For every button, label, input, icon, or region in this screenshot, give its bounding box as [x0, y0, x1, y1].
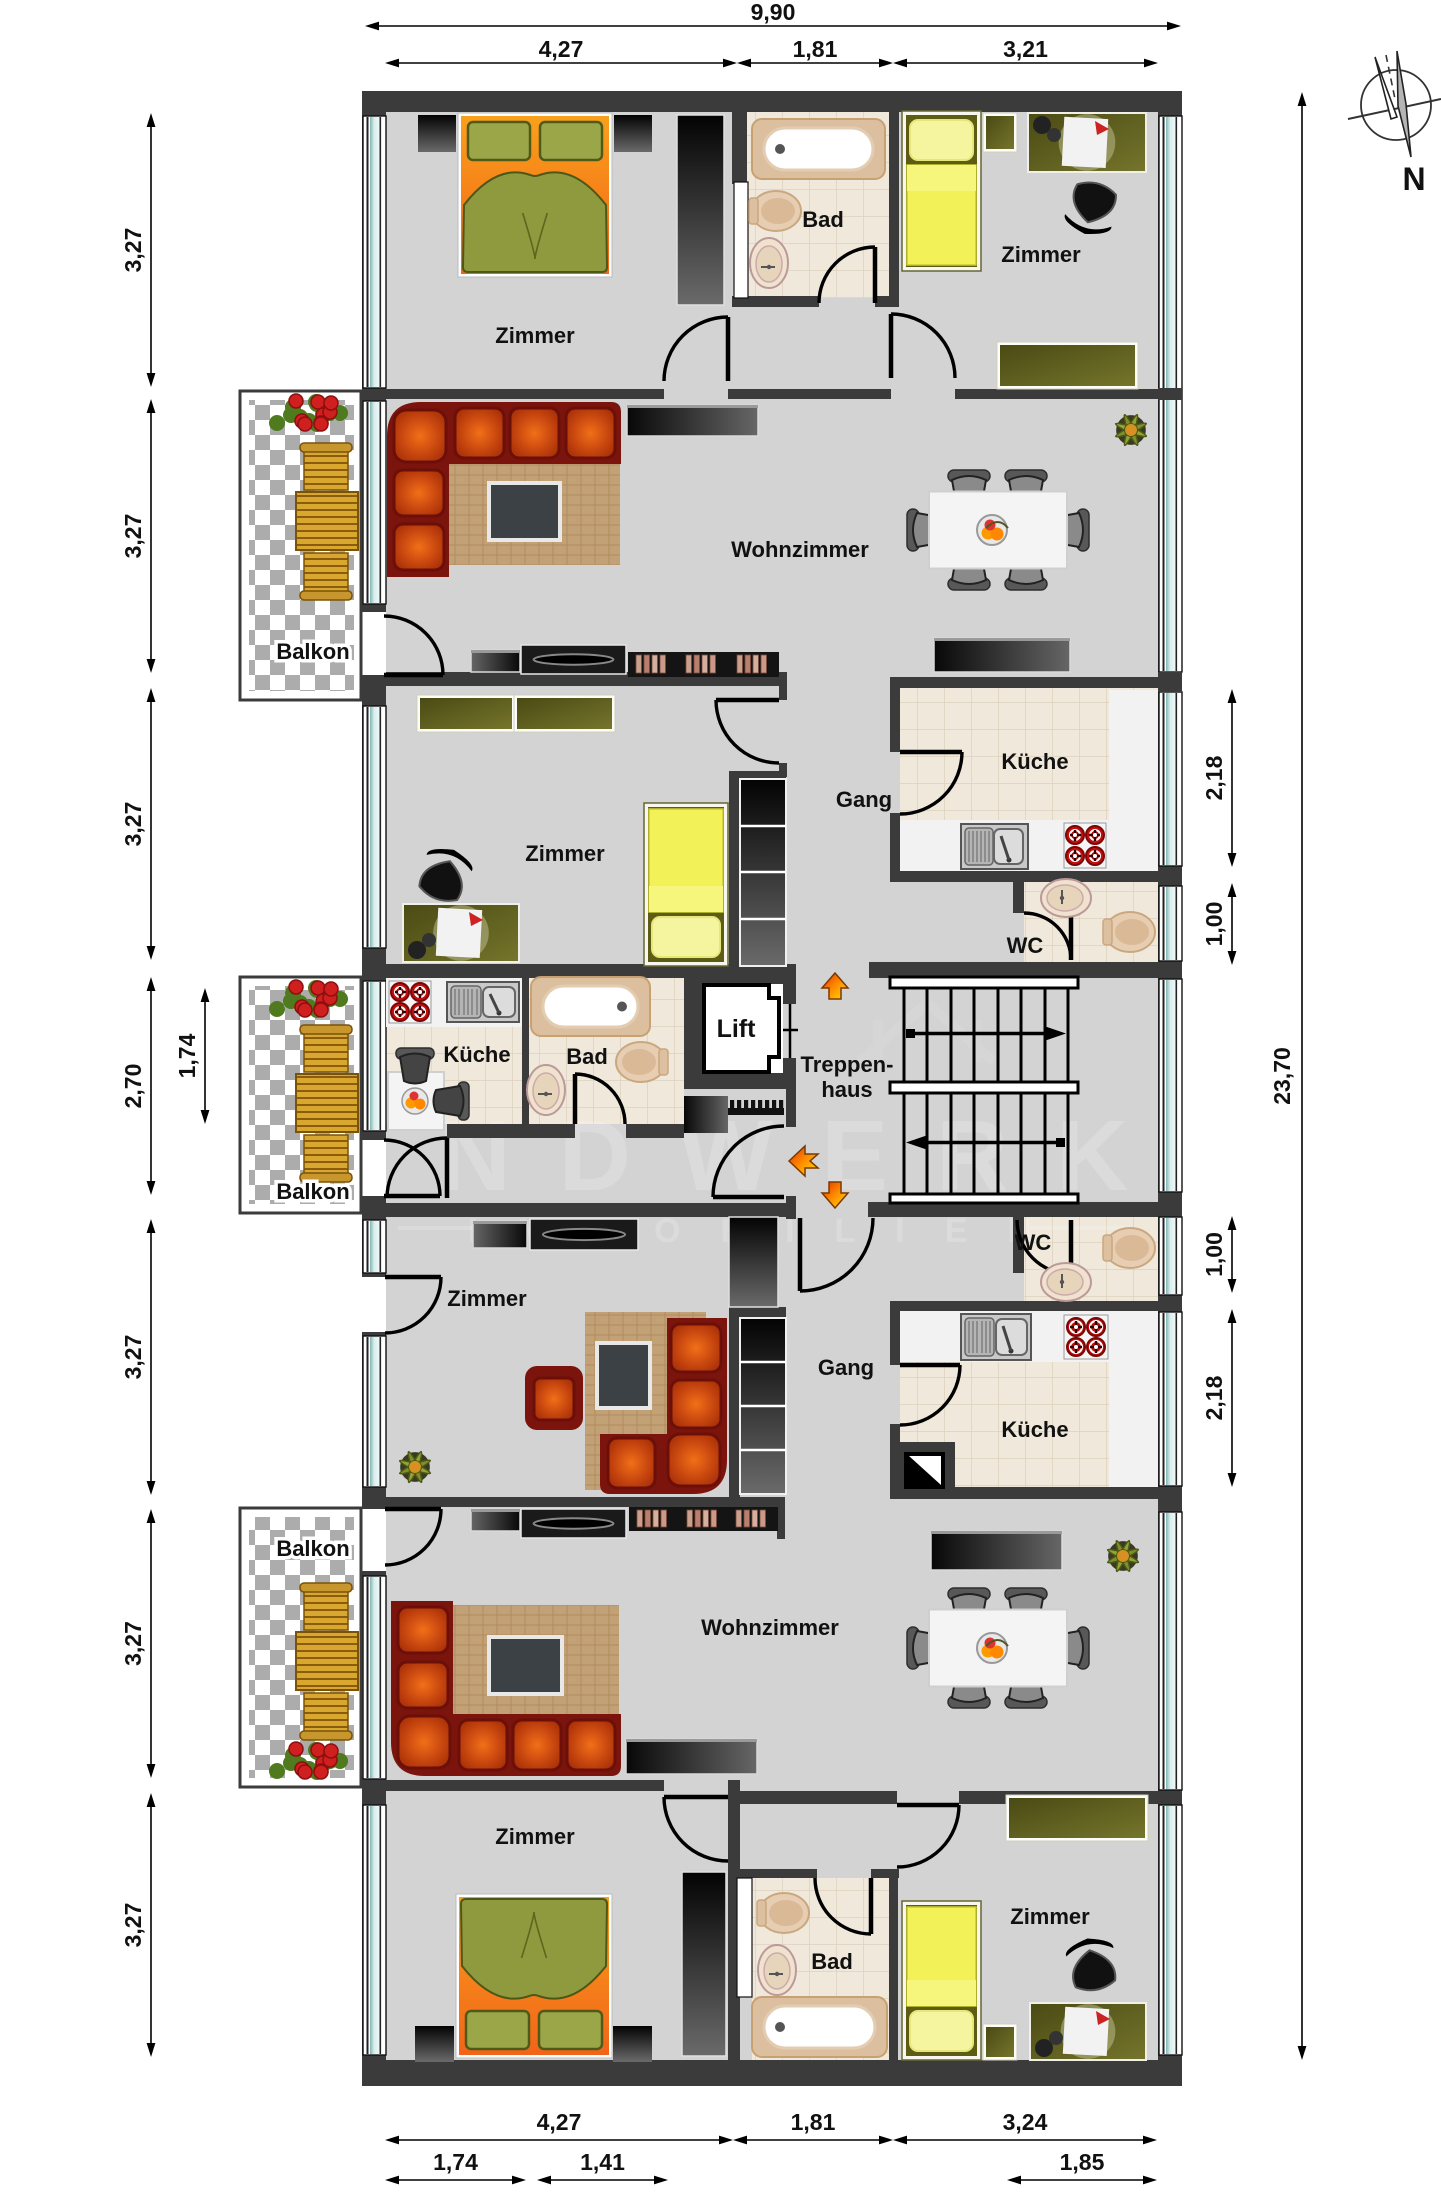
svg-text:1,41: 1,41	[580, 2149, 625, 2175]
svg-text:Küche: Küche	[443, 1042, 510, 1067]
svg-text:3,27: 3,27	[120, 1903, 146, 1948]
svg-text:Gang: Gang	[818, 1355, 874, 1380]
svg-text:1,00: 1,00	[1201, 902, 1227, 947]
svg-text:haus: haus	[821, 1077, 872, 1102]
svg-text:Balkon: Balkon	[276, 1179, 349, 1204]
svg-text:1,81: 1,81	[791, 2109, 836, 2135]
svg-text:Lift: Lift	[717, 1015, 757, 1043]
svg-text:Gang: Gang	[836, 787, 892, 812]
svg-text:1,74: 1,74	[433, 2149, 478, 2175]
svg-text:Balkon: Balkon	[276, 639, 349, 664]
svg-text:2,18: 2,18	[1201, 1375, 1227, 1420]
svg-text:3,27: 3,27	[120, 1621, 146, 1666]
svg-text:3,24: 3,24	[1003, 2109, 1048, 2135]
svg-text:4,27: 4,27	[539, 36, 584, 62]
svg-text:1,85: 1,85	[1060, 2149, 1105, 2175]
svg-text:Bad: Bad	[811, 1949, 853, 1974]
svg-text:Bad: Bad	[802, 207, 844, 232]
svg-text:Zimmer: Zimmer	[495, 323, 575, 348]
svg-text:2,70: 2,70	[120, 1064, 146, 1109]
svg-text:Küche: Küche	[1001, 749, 1068, 774]
svg-text:2,18: 2,18	[1201, 755, 1227, 800]
svg-text:Zimmer: Zimmer	[495, 1824, 575, 1849]
svg-text:1,74: 1,74	[174, 1033, 200, 1078]
svg-text:WC: WC	[1007, 933, 1044, 958]
svg-text:1,81: 1,81	[793, 36, 838, 62]
svg-text:4,27: 4,27	[537, 2109, 582, 2135]
svg-text:Zimmer: Zimmer	[1001, 242, 1081, 267]
svg-text:Treppen-: Treppen-	[801, 1052, 894, 1077]
svg-text:23,70: 23,70	[1269, 1047, 1295, 1105]
svg-text:Zimmer: Zimmer	[525, 841, 605, 866]
svg-text:3,27: 3,27	[120, 1335, 146, 1380]
svg-text:Wohnzimmer: Wohnzimmer	[701, 1615, 839, 1640]
svg-text:Küche: Küche	[1001, 1417, 1068, 1442]
svg-text:3,27: 3,27	[120, 802, 146, 847]
svg-text:3,27: 3,27	[120, 228, 146, 273]
svg-text:3,21: 3,21	[1003, 36, 1048, 62]
svg-text:9,90: 9,90	[751, 0, 796, 25]
svg-text:Zimmer: Zimmer	[447, 1286, 527, 1311]
svg-text:3,27: 3,27	[120, 514, 146, 559]
svg-text:1,00: 1,00	[1201, 1232, 1227, 1277]
svg-text:Balkon: Balkon	[276, 1536, 349, 1561]
svg-text:WC: WC	[1015, 1230, 1052, 1255]
svg-text:Zimmer: Zimmer	[1010, 1904, 1090, 1929]
svg-text:N: N	[1402, 161, 1425, 197]
svg-text:Bad: Bad	[566, 1044, 608, 1069]
svg-text:Wohnzimmer: Wohnzimmer	[731, 537, 869, 562]
